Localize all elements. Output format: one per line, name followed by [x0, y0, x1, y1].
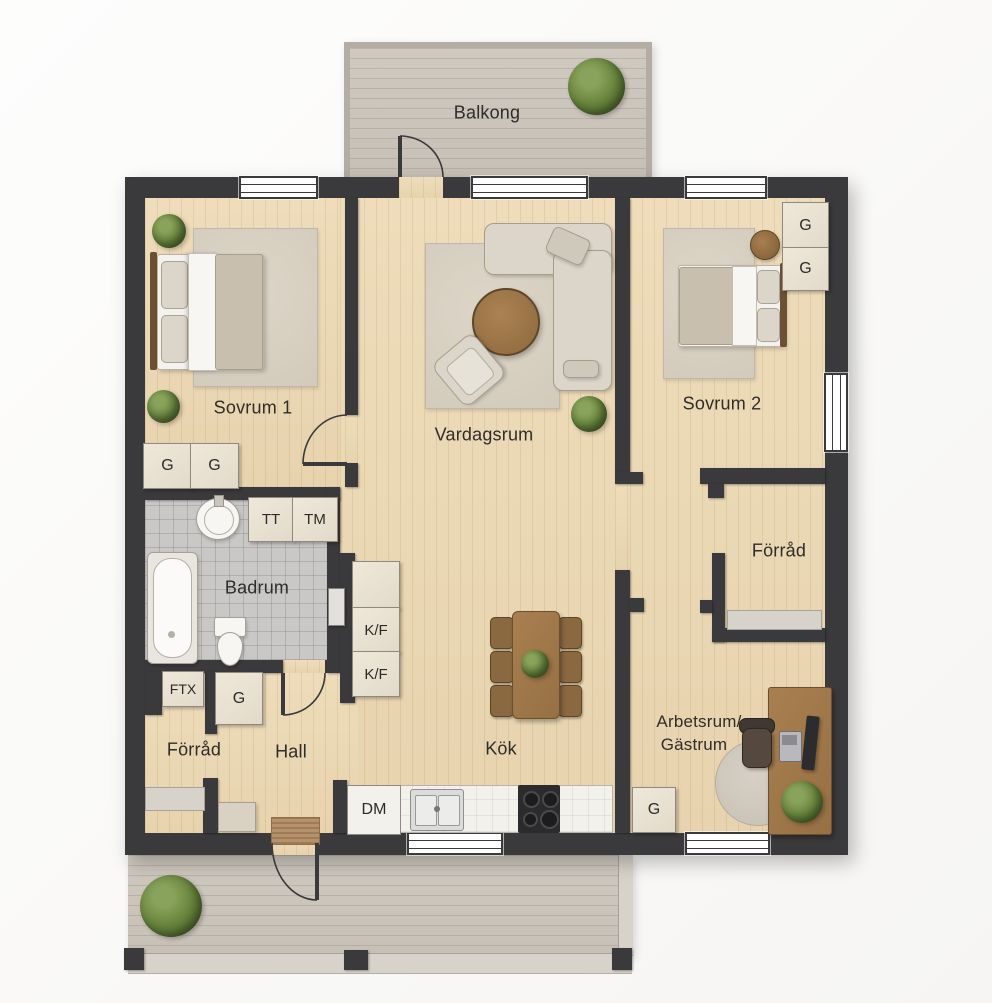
wall-sovrum2-south — [700, 468, 825, 484]
dining-chair — [490, 617, 514, 649]
kitchen-tall-cabinet — [352, 561, 400, 609]
window-kok — [407, 832, 503, 855]
window-vardagsrum — [471, 176, 588, 199]
sovrum2-label: Sovrum 2 — [683, 394, 762, 415]
bed-blanket — [679, 267, 736, 345]
opening-balcony-door — [399, 177, 443, 198]
dining-chair — [558, 685, 582, 717]
wall-sovrum1-east-stub — [345, 463, 358, 487]
fridge-freezer: K/F — [352, 651, 400, 697]
opening-sovrum1-door — [345, 415, 358, 463]
hall-label: Hall — [275, 742, 307, 763]
opening-corridor — [615, 484, 630, 570]
hall-bench — [218, 802, 256, 832]
sovrum1-label: Sovrum 1 — [214, 398, 293, 419]
sink-faucet-icon — [214, 495, 224, 507]
washing-machine-label: TM — [304, 511, 326, 528]
kitchen-sink — [410, 789, 464, 831]
wardrobe-cabinet: G — [215, 672, 263, 725]
kok-label: Kök — [485, 739, 517, 760]
fridge-freezer-label: K/F — [364, 666, 387, 683]
tumble-dryer: TT — [248, 497, 294, 542]
wall-ftx-stub — [145, 672, 162, 715]
window-sovrum2-east — [824, 373, 848, 452]
wall-sovrum1-east-upper — [345, 198, 358, 415]
stove — [518, 785, 560, 833]
sovrum2-bed — [678, 263, 787, 347]
wall-forrad-right-south — [712, 628, 825, 642]
bed-pillow — [757, 308, 780, 342]
burner-icon — [523, 791, 540, 808]
burner-icon — [540, 810, 559, 829]
terrace-post — [124, 948, 144, 970]
bed-duvet — [732, 266, 757, 346]
terrace-deck — [128, 855, 632, 955]
wardrobe-label: G — [648, 801, 660, 819]
terrace-fascia-right — [618, 855, 633, 956]
desk-plant-icon — [781, 781, 823, 823]
wardrobe-cabinet: G — [782, 202, 829, 249]
opening-bathroom-door — [283, 660, 325, 673]
wardrobe-label: G — [233, 690, 245, 708]
dishwasher-label: DM — [362, 801, 387, 819]
window-sovrum2 — [685, 176, 767, 199]
wardrobe-label: G — [161, 457, 173, 475]
dining-chair — [558, 617, 582, 649]
sink-faucet-icon — [434, 806, 440, 812]
chair-seat — [742, 728, 772, 768]
burner-icon — [542, 791, 559, 808]
sovrum1-bed — [150, 252, 262, 370]
forrad-left-label: Förråd — [167, 740, 221, 761]
fridge-freezer: K/F — [352, 607, 400, 653]
dining-set — [490, 610, 580, 720]
arbetsrum-label-line1: Arbetsrum/ — [656, 712, 741, 732]
wall-divider-lower — [615, 570, 630, 833]
sink-basin — [204, 505, 234, 535]
forrad-right-label: Förråd — [752, 541, 806, 562]
wardrobe-cabinet: G — [632, 787, 676, 833]
bathtub-drain-icon — [168, 631, 175, 638]
balcony-plant-icon — [568, 58, 625, 115]
wardrobe-label: G — [208, 457, 220, 475]
armchair-seat — [444, 345, 496, 397]
office-chair — [739, 714, 773, 770]
wall-forrad-right-west-stub — [700, 600, 712, 613]
wall-forrad-left-divider — [203, 778, 218, 833]
dishwasher: DM — [347, 785, 401, 835]
sovrum1-plant-icon — [152, 214, 186, 248]
sink-basin — [438, 795, 460, 826]
window-arbetsrum — [685, 832, 770, 855]
sovrum2-side-table — [750, 230, 780, 260]
balcony-label: Balkong — [454, 103, 520, 124]
wall-divider-lower-stub — [630, 598, 644, 612]
bathroom-mirror — [328, 588, 345, 626]
sofa-cushion — [563, 360, 599, 378]
bed-headboard — [150, 252, 157, 370]
wall-divider-upper-foot — [615, 472, 643, 484]
wall-sovrum2-south-stub — [708, 484, 724, 498]
wardrobe-cabinet: G — [143, 443, 192, 489]
laptop-icon — [779, 731, 802, 762]
bed-blanket — [215, 254, 263, 370]
forrad-right-shelf — [727, 610, 822, 630]
laptop-screen — [782, 735, 797, 745]
wardrobe-label: G — [799, 217, 811, 235]
sovrum1-plant-icon — [147, 390, 180, 423]
vardagsrum-plant-icon — [571, 396, 607, 432]
terrace-plant-icon — [140, 875, 202, 937]
terrace-post — [612, 948, 632, 970]
arbetsrum-label-line2: Gästrum — [661, 735, 728, 755]
table-centerpiece-icon — [521, 650, 549, 678]
bed-pillow — [757, 270, 780, 304]
bed-pillow — [161, 315, 188, 363]
bed-pillow — [161, 261, 188, 309]
fridge-freezer-label: K/F — [364, 622, 387, 639]
dining-chair — [490, 651, 514, 683]
ventilation-unit-label: FTX — [170, 681, 196, 697]
vardagsrum-label: Vardagsrum — [435, 425, 534, 446]
bathtub — [147, 552, 198, 664]
forrad-bench — [145, 787, 205, 811]
dining-chair — [490, 685, 514, 717]
tumble-dryer-label: TT — [262, 511, 280, 528]
doormat — [271, 817, 320, 845]
ventilation-unit: FTX — [162, 671, 204, 707]
dining-chair — [558, 651, 582, 683]
wall-divider-upper — [615, 198, 630, 472]
burner-icon — [523, 812, 538, 827]
wall-kitchen-counter-end — [333, 780, 347, 833]
wardrobe-cabinet: G — [190, 443, 239, 489]
terrace-fascia — [128, 953, 632, 974]
bathroom-sink — [196, 498, 240, 540]
wardrobe-label: G — [799, 260, 811, 278]
window-sovrum1 — [239, 176, 318, 199]
washing-machine: TM — [292, 497, 338, 542]
floor-plan: Balkong — [0, 0, 992, 1003]
terrace-post — [344, 950, 368, 970]
badrum-label: Badrum — [225, 578, 289, 599]
wardrobe-cabinet: G — [782, 247, 829, 291]
bathtub-basin — [153, 558, 192, 658]
